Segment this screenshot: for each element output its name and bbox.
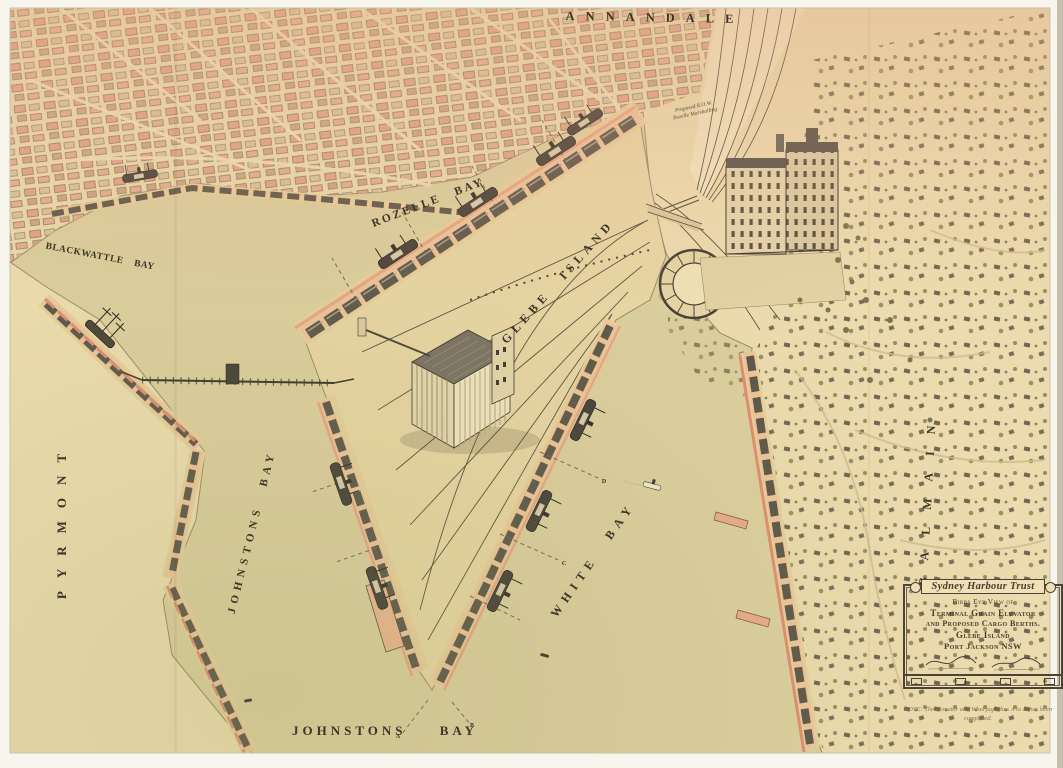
map-scan: ANNANDALE ROZELLE BAY BLACKWATTLE BAY GL…: [0, 0, 1063, 768]
cartouche-body: Birds Eye View of Terminal Grain Elevato…: [910, 597, 1056, 672]
signatures: [918, 652, 1048, 672]
cartouche-line-4: Glebe Island: [910, 630, 1056, 640]
paper-tint-green: [10, 8, 1050, 753]
berth-letter-d: D: [602, 479, 606, 485]
title-cartouche: Sydney Harbour Trust Birds Eye View of T…: [903, 584, 1063, 689]
label-annandale: ANNANDALE: [565, 9, 744, 27]
cartouche-line-5: Port Jackson NSW: [910, 641, 1056, 651]
cartouche-base: [905, 674, 1061, 685]
berth-letter-b: B: [470, 723, 474, 729]
fold-line-right: [868, 8, 870, 753]
map-note: NOTE: The Elevator and Wharfage thus A t…: [898, 706, 1058, 724]
label-johnstons-bay-south: JOHNSTONS BAY: [292, 723, 478, 739]
berth-letter-a: A: [396, 734, 400, 740]
cartouche-banner: Sydney Harbour Trust: [921, 579, 1045, 594]
berth-letter-c: C: [562, 561, 566, 567]
cartouche-line-2: Terminal Grain Elevator: [910, 608, 1056, 618]
cartouche-title: Sydney Harbour Trust: [931, 581, 1034, 592]
cartouche-line-3: and Proposed Cargo Berths.: [910, 619, 1056, 628]
label-pyrmont: PYRMONT: [54, 441, 70, 599]
cartouche-line-1: Birds Eye View of: [910, 597, 1056, 606]
fold-line-left: [174, 8, 177, 753]
